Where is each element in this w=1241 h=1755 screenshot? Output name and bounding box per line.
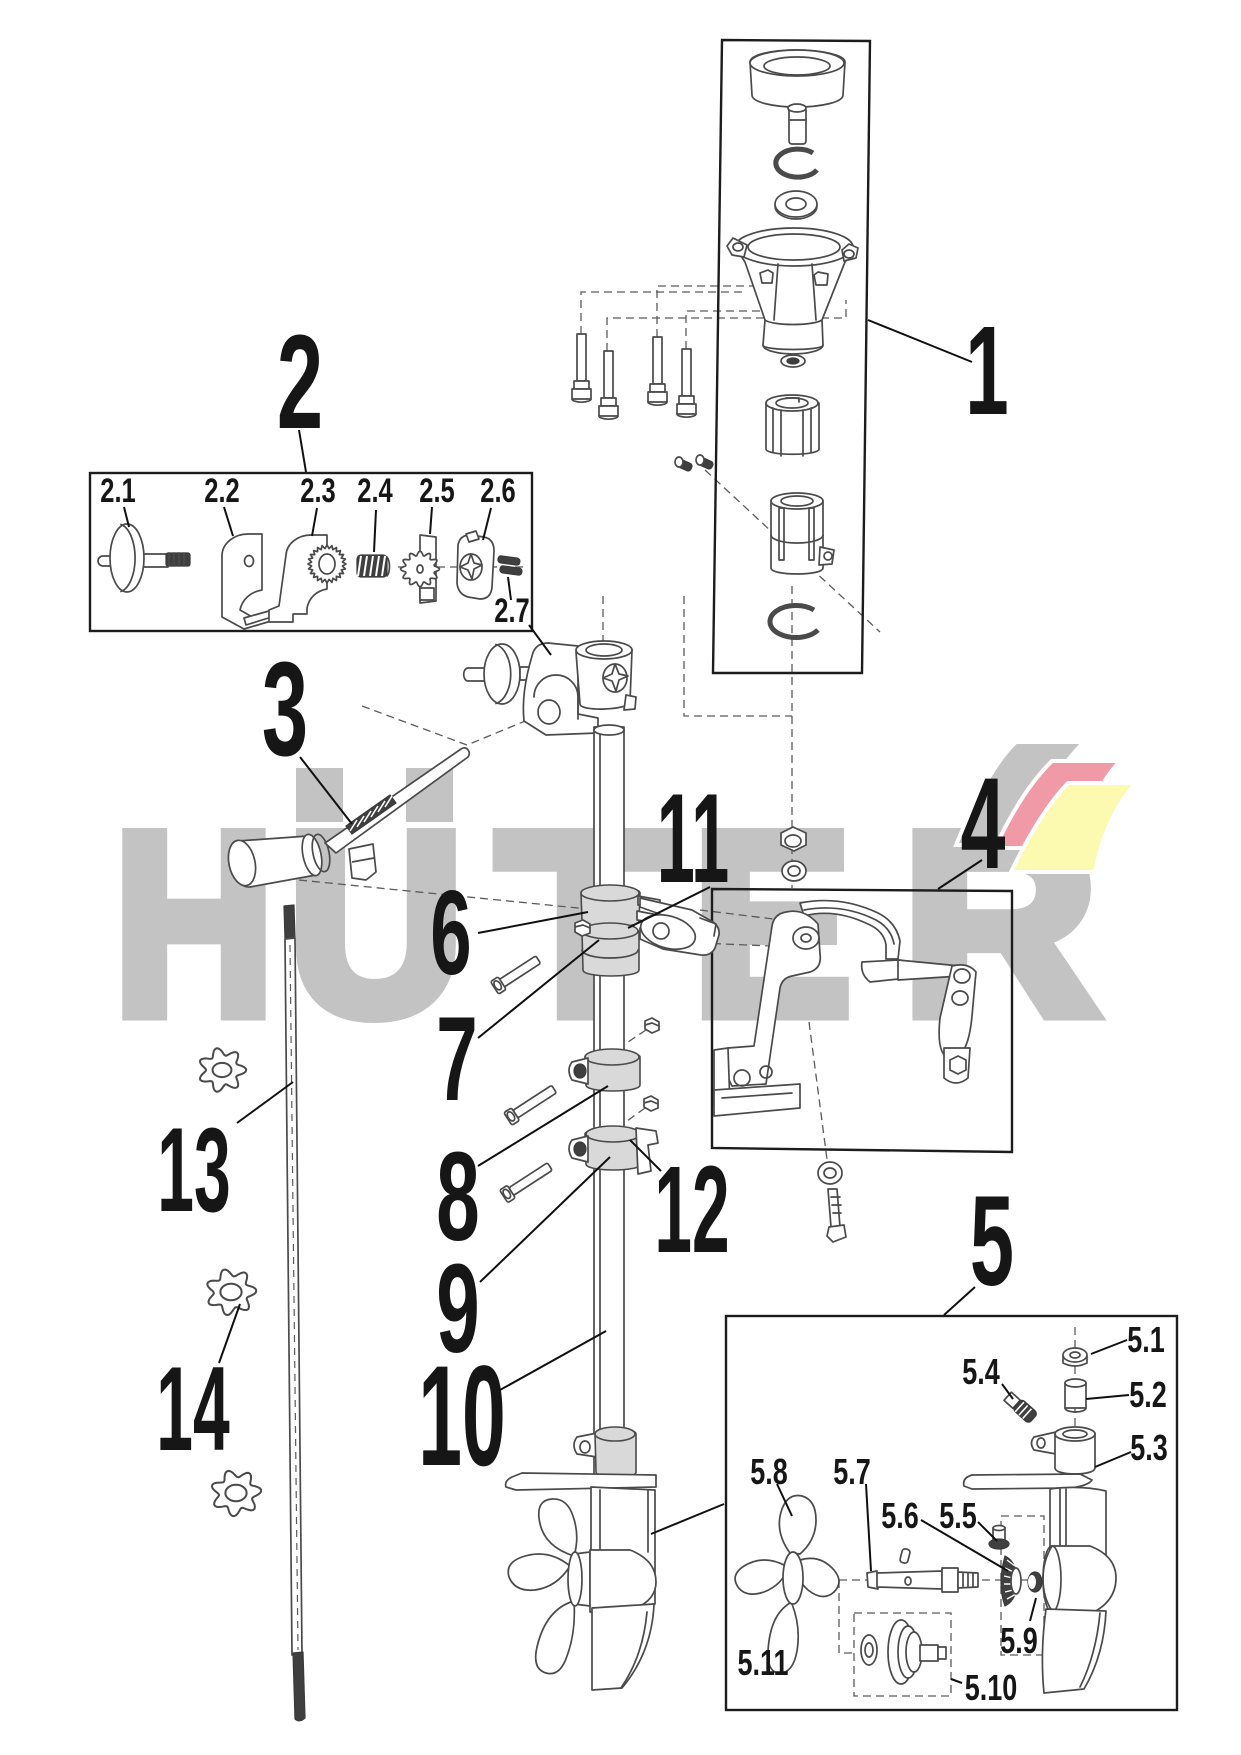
svg-text:6: 6 [430,867,471,1000]
svg-text:5.5: 5.5 [939,1495,977,1536]
svg-text:13: 13 [157,1102,230,1237]
svg-text:H: H [114,779,274,1067]
svg-text:5.7: 5.7 [833,1451,871,1492]
svg-text:5: 5 [970,1170,1014,1313]
svg-text:2.2: 2.2 [204,473,239,510]
svg-text:14: 14 [156,1341,230,1476]
svg-text:2.1: 2.1 [100,473,135,510]
svg-text:5.11: 5.11 [737,1642,788,1683]
svg-text:2.7: 2.7 [494,593,529,630]
svg-text:12: 12 [654,1142,729,1280]
svg-text:2.3: 2.3 [300,473,335,510]
svg-text:2.5: 2.5 [419,473,454,510]
svg-text:2: 2 [277,307,323,457]
svg-text:5.10: 5.10 [965,1667,1018,1708]
svg-text:10: 10 [418,1337,505,1496]
svg-text:5.6: 5.6 [881,1495,919,1536]
svg-text:3: 3 [262,634,308,784]
svg-text:5.1: 5.1 [1127,1319,1165,1360]
svg-text:11: 11 [657,768,729,910]
svg-text:5.8: 5.8 [750,1451,788,1492]
svg-text:5.4: 5.4 [962,1351,1000,1392]
svg-text:7: 7 [436,993,477,1126]
svg-text:5.2: 5.2 [1129,1374,1167,1415]
svg-text:1: 1 [965,301,1008,442]
svg-text:2.4: 2.4 [357,473,393,510]
svg-text:5.3: 5.3 [1130,1427,1168,1468]
svg-text:2.6: 2.6 [480,473,515,510]
svg-text:5.9: 5.9 [1000,1620,1038,1661]
svg-text:4: 4 [961,750,1006,895]
